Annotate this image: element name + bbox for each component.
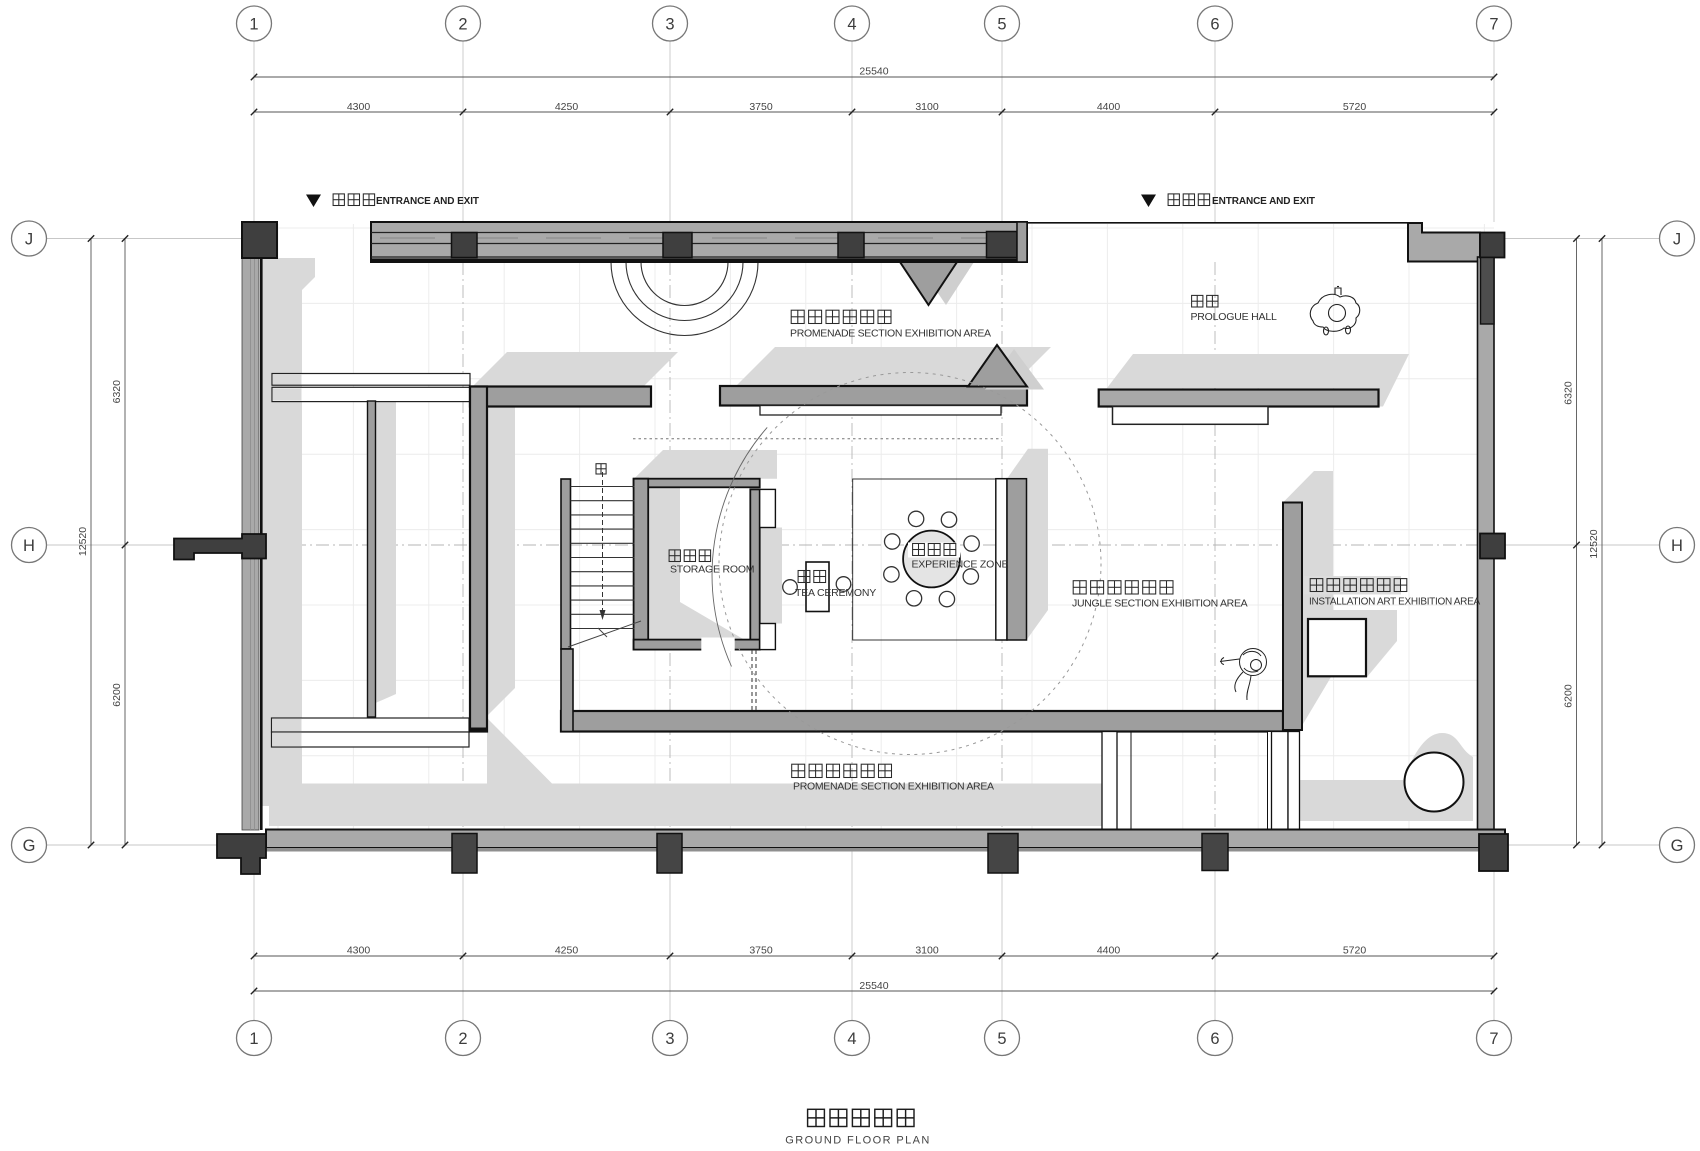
svg-text:H: H [23,537,35,555]
svg-text:J: J [1673,231,1681,249]
svg-text:6: 6 [1210,16,1219,34]
svg-text:6200: 6200 [111,683,123,707]
svg-text:5: 5 [997,1030,1006,1048]
svg-text:PROLOGUE HALL: PROLOGUE HALL [1191,311,1277,323]
svg-text:EXPERIENCE ZONE: EXPERIENCE ZONE [912,559,1009,571]
svg-text:5720: 5720 [1343,101,1367,113]
svg-text:2: 2 [458,16,467,34]
svg-text:4400: 4400 [1097,101,1121,113]
svg-text:4: 4 [847,1030,856,1048]
svg-text:ENTRANCE AND EXIT: ENTRANCE AND EXIT [1212,196,1315,207]
svg-text:4400: 4400 [1097,945,1121,957]
svg-text:4300: 4300 [347,945,371,957]
svg-text:12520: 12520 [1588,529,1600,558]
svg-text:PROMENADE SECTION EXHIBITION A: PROMENADE SECTION EXHIBITION AREA [793,781,994,793]
svg-text:6200: 6200 [1563,684,1575,708]
svg-text:ENTRANCE AND EXIT: ENTRANCE AND EXIT [376,196,479,207]
svg-text:5720: 5720 [1343,945,1367,957]
svg-text:H: H [1671,537,1683,555]
svg-text:4: 4 [847,16,856,34]
svg-text:6320: 6320 [1563,381,1575,405]
svg-text:TEA CEREMONY: TEA CEREMONY [795,587,876,599]
svg-text:J: J [25,231,33,249]
svg-text:1: 1 [249,16,258,34]
svg-text:2: 2 [458,1030,467,1048]
svg-text:3750: 3750 [749,945,773,957]
svg-text:STORAGE ROOM: STORAGE ROOM [670,564,754,576]
svg-text:3100: 3100 [915,945,939,957]
svg-text:INSTALLATION ART EXHIBITION AR: INSTALLATION ART EXHIBITION AREA [1309,597,1480,608]
svg-text:6: 6 [1210,1030,1219,1048]
svg-text:G: G [1671,837,1684,855]
svg-text:7: 7 [1489,16,1498,34]
svg-text:25540: 25540 [859,980,888,992]
svg-text:6320: 6320 [111,380,123,404]
svg-text:GROUND FLOOR PLAN: GROUND FLOOR PLAN [785,1135,930,1147]
svg-text:3: 3 [665,16,674,34]
svg-text:25540: 25540 [859,66,888,78]
svg-text:7: 7 [1489,1030,1498,1048]
svg-text:4250: 4250 [555,945,579,957]
svg-text:4300: 4300 [347,101,371,113]
svg-text:4250: 4250 [555,101,579,113]
svg-text:G: G [23,837,36,855]
svg-text:JUNGLE SECTION EXHIBITION AREA: JUNGLE SECTION EXHIBITION AREA [1072,598,1248,610]
svg-text:PROMENADE SECTION EXHIBITION A: PROMENADE SECTION EXHIBITION AREA [790,328,991,340]
svg-text:5: 5 [997,16,1006,34]
svg-text:3100: 3100 [915,101,939,113]
svg-text:3750: 3750 [749,101,773,113]
svg-text:1: 1 [249,1030,258,1048]
svg-text:3: 3 [665,1030,674,1048]
svg-text:12520: 12520 [77,527,89,556]
